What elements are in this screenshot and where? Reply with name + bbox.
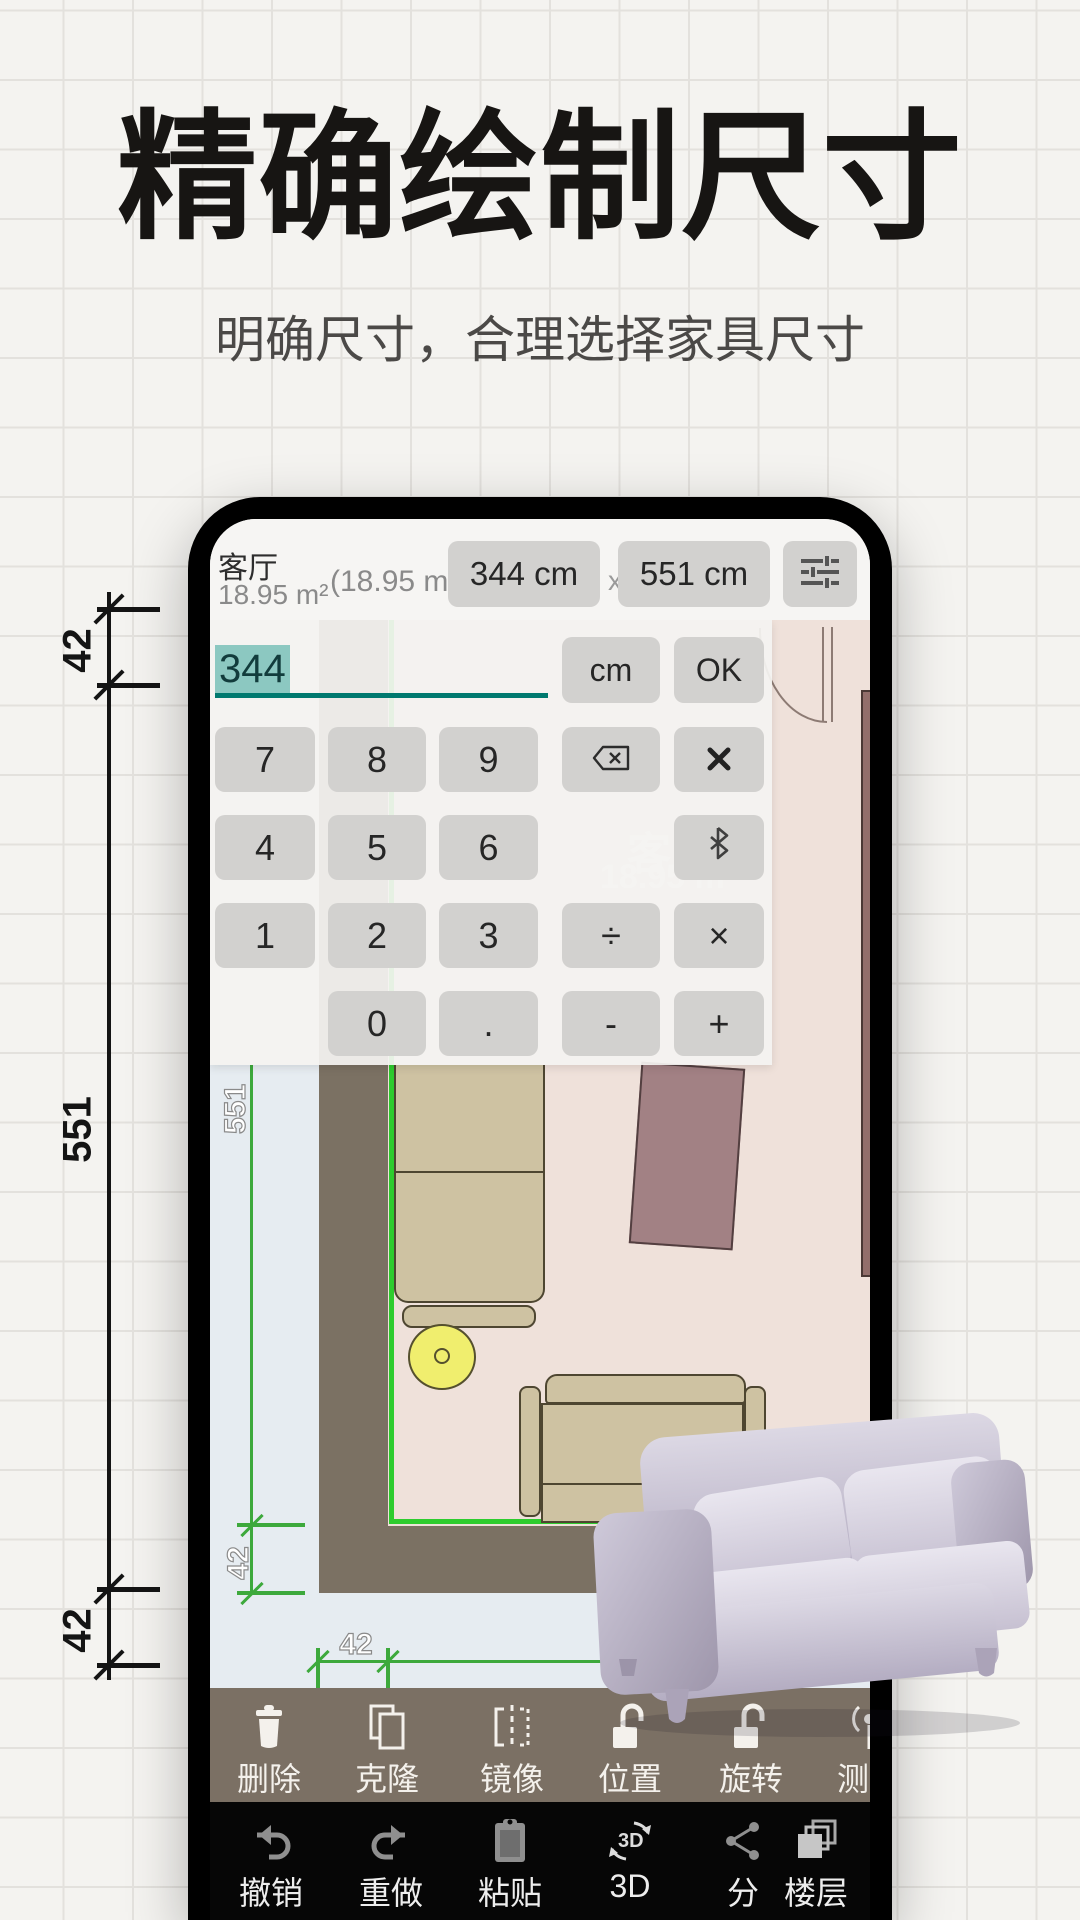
nav-item-paste[interactable]: 粘贴: [455, 1802, 565, 1920]
room-width-button[interactable]: 344 cm: [448, 541, 600, 607]
bluetooth-icon: [706, 826, 732, 869]
ok-button[interactable]: OK: [674, 637, 764, 703]
key-close[interactable]: [674, 727, 764, 792]
furniture-side-table[interactable]: [408, 1324, 476, 1390]
key-divide[interactable]: ÷: [562, 903, 660, 968]
svg-text:3D: 3D: [618, 1830, 644, 1852]
page-title: 精确绘制尺寸: [0, 98, 1080, 258]
key-multiply[interactable]: ×: [674, 903, 764, 968]
page-subtitle: 明确尺寸，合理选择家具尺寸: [0, 300, 1080, 372]
clone-icon: [367, 1702, 407, 1752]
nav-item-undo[interactable]: 撤销: [216, 1802, 326, 1920]
calculator-input-underline: [215, 693, 548, 698]
layers-stack-icon: [793, 1814, 839, 1868]
clipboard-icon: [492, 1814, 528, 1868]
plan-topbar: 客厅 18.95 m² (18.95 m²) 344 cm x 551 cm: [210, 519, 870, 620]
key-dot[interactable]: .: [439, 991, 538, 1056]
close-icon: [706, 739, 732, 781]
unit-button[interactable]: cm: [562, 637, 660, 703]
key-0[interactable]: 0: [328, 991, 426, 1056]
furniture-sofa-chaise[interactable]: [402, 1305, 536, 1328]
toolbar-item-clone[interactable]: 克隆: [332, 1688, 442, 1802]
key-4[interactable]: 4: [215, 815, 315, 880]
room-height-button[interactable]: 551 cm: [618, 541, 770, 607]
nav-item-3d[interactable]: 3D 3D: [575, 1802, 685, 1920]
room-settings-button[interactable]: [783, 541, 857, 607]
key-bluetooth[interactable]: [674, 815, 764, 880]
sofa-3d-render: [585, 1393, 1043, 1738]
nav-item-floors[interactable]: 楼层: [761, 1802, 870, 1920]
calculator-panel: 344 cm OK 7 8 9 4 5: [210, 620, 772, 1065]
share-icon: [723, 1814, 763, 1868]
trash-icon: [251, 1702, 287, 1752]
sofa-seam: [396, 1171, 543, 1173]
key-1[interactable]: 1: [215, 903, 315, 968]
furniture-table[interactable]: [629, 1062, 745, 1251]
key-7[interactable]: 7: [215, 727, 315, 792]
undo-icon: [247, 1814, 295, 1868]
key-minus[interactable]: -: [562, 991, 660, 1056]
key-8[interactable]: 8: [328, 727, 426, 792]
furniture-loveseat-arm-left: [519, 1386, 541, 1517]
side-table-ring: [434, 1348, 450, 1364]
sliders-icon: [799, 554, 841, 595]
furniture-corner-sofa[interactable]: [394, 1065, 545, 1303]
key-plus[interactable]: +: [674, 991, 764, 1056]
key-backspace[interactable]: [562, 727, 660, 792]
key-6[interactable]: 6: [439, 815, 538, 880]
promo-screenshot: { "page": { "title": "精确绘制尺寸", "subtitle…: [0, 0, 1080, 1920]
mirror-icon: [488, 1702, 536, 1752]
key-2[interactable]: 2: [328, 903, 426, 968]
plan-label-42-bottom: 42: [311, 1628, 401, 1662]
toolbar-item-delete[interactable]: 删除: [214, 1688, 324, 1802]
dimension-label-42-top: 42: [56, 591, 101, 711]
furniture-sideboard[interactable]: [861, 690, 870, 1277]
redo-icon: [367, 1814, 415, 1868]
dimension-label-42-bottom: 42: [56, 1571, 101, 1691]
key-5[interactable]: 5: [328, 815, 426, 880]
3d-rotate-icon: 3D: [604, 1814, 656, 1868]
room-area: 18.95 m²: [218, 579, 329, 611]
dimension-label-551: 551: [56, 1070, 101, 1190]
key-9[interactable]: 9: [439, 727, 538, 792]
key-3[interactable]: 3: [439, 903, 538, 968]
plan-label-551: 551: [219, 1064, 253, 1154]
nav-item-redo[interactable]: 重做: [336, 1802, 446, 1920]
bottom-navbar: 撤销 重做 粘贴 3D 3D: [210, 1802, 870, 1920]
plan-label-42-left: 42: [222, 1518, 256, 1608]
backspace-icon: [591, 739, 631, 781]
toolbar-item-mirror[interactable]: 镜像: [457, 1688, 567, 1802]
dimension-line: [107, 592, 111, 1680]
calculator-input[interactable]: 344: [215, 645, 290, 694]
